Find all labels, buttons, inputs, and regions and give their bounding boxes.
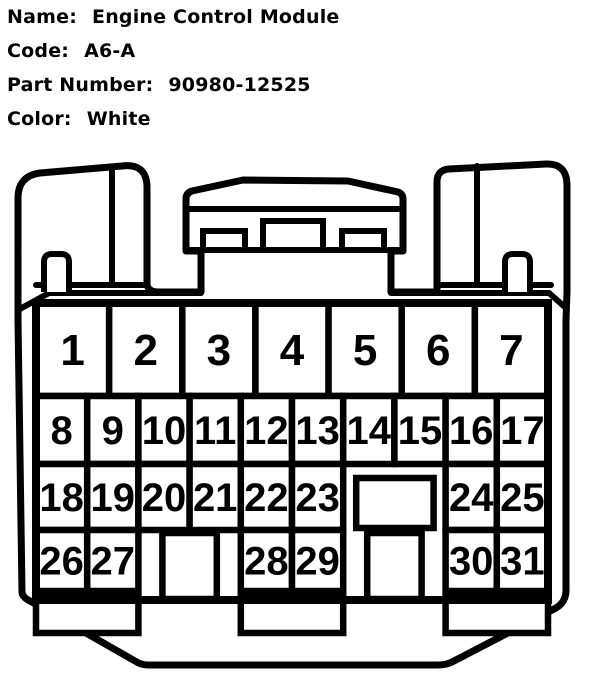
pin-number: 21 (193, 476, 238, 520)
pin-number: 15 (398, 409, 443, 453)
pin-number: 8 (50, 409, 72, 453)
field-label: Part Number: (7, 74, 153, 96)
pin-number: 11 (194, 409, 236, 453)
pin-number: 9 (102, 409, 124, 453)
pin-number: 3 (207, 326, 231, 375)
pin-number: 22 (244, 476, 289, 520)
pin-number: 1 (60, 326, 84, 375)
pin-number: 23 (295, 476, 340, 520)
latch-detail-rect-center (263, 221, 323, 250)
latch-detail-rect-left (203, 231, 245, 250)
pin-number: 24 (449, 476, 494, 520)
field-label: Color: (7, 108, 72, 130)
key-slot (367, 533, 421, 599)
field-value: Engine Control Module (92, 6, 340, 28)
connector-diagram: 1234567891011121314151617181920212223242… (0, 160, 608, 682)
latch-detail-rect-right (342, 231, 384, 250)
header-field-code: Code: A6-A (7, 40, 340, 74)
pin-number: 10 (142, 409, 187, 453)
pin-number: 20 (142, 476, 187, 520)
pin-number: 14 (347, 409, 392, 453)
header-field-part-number: Part Number: 90980-12525 (7, 74, 340, 108)
field-label: Name: (7, 6, 77, 28)
pin-number: 5 (353, 326, 377, 375)
pin-number: 19 (91, 476, 136, 520)
left-ear-post (44, 254, 69, 292)
connector-pinout-page: Name: Engine Control Module Code: A6-A P… (0, 0, 608, 682)
pin-number: 12 (244, 409, 289, 453)
pin-grid: 1234567891011121314151617181920212223242… (36, 303, 548, 633)
pin-number: 6 (426, 326, 450, 375)
key-slot (162, 533, 216, 599)
pin-number: 25 (500, 476, 545, 520)
field-label: Code: (7, 40, 69, 62)
field-value: White (87, 108, 151, 130)
connector-header: Name: Engine Control Module Code: A6-A P… (7, 6, 340, 142)
field-value: A6-A (84, 40, 135, 62)
pin-number: 30 (449, 540, 494, 584)
pin-number: 29 (295, 540, 340, 584)
pin-number: 26 (39, 540, 84, 584)
right-ear-post (505, 254, 530, 292)
pin-number: 4 (280, 326, 305, 375)
pin-number: 2 (133, 326, 157, 375)
header-field-name: Name: Engine Control Module (7, 6, 340, 40)
pin-number: 13 (295, 409, 340, 453)
pin-number: 17 (500, 409, 545, 453)
pin-number: 18 (39, 476, 84, 520)
pin-number: 28 (244, 540, 289, 584)
blank-slot (356, 478, 433, 528)
pin-number: 27 (91, 540, 136, 584)
header-field-color: Color: White (7, 108, 340, 142)
pin-number: 31 (500, 540, 545, 584)
pin-number: 16 (449, 409, 494, 453)
field-value: 90980-12525 (168, 74, 310, 96)
pin-number: 7 (499, 326, 523, 375)
